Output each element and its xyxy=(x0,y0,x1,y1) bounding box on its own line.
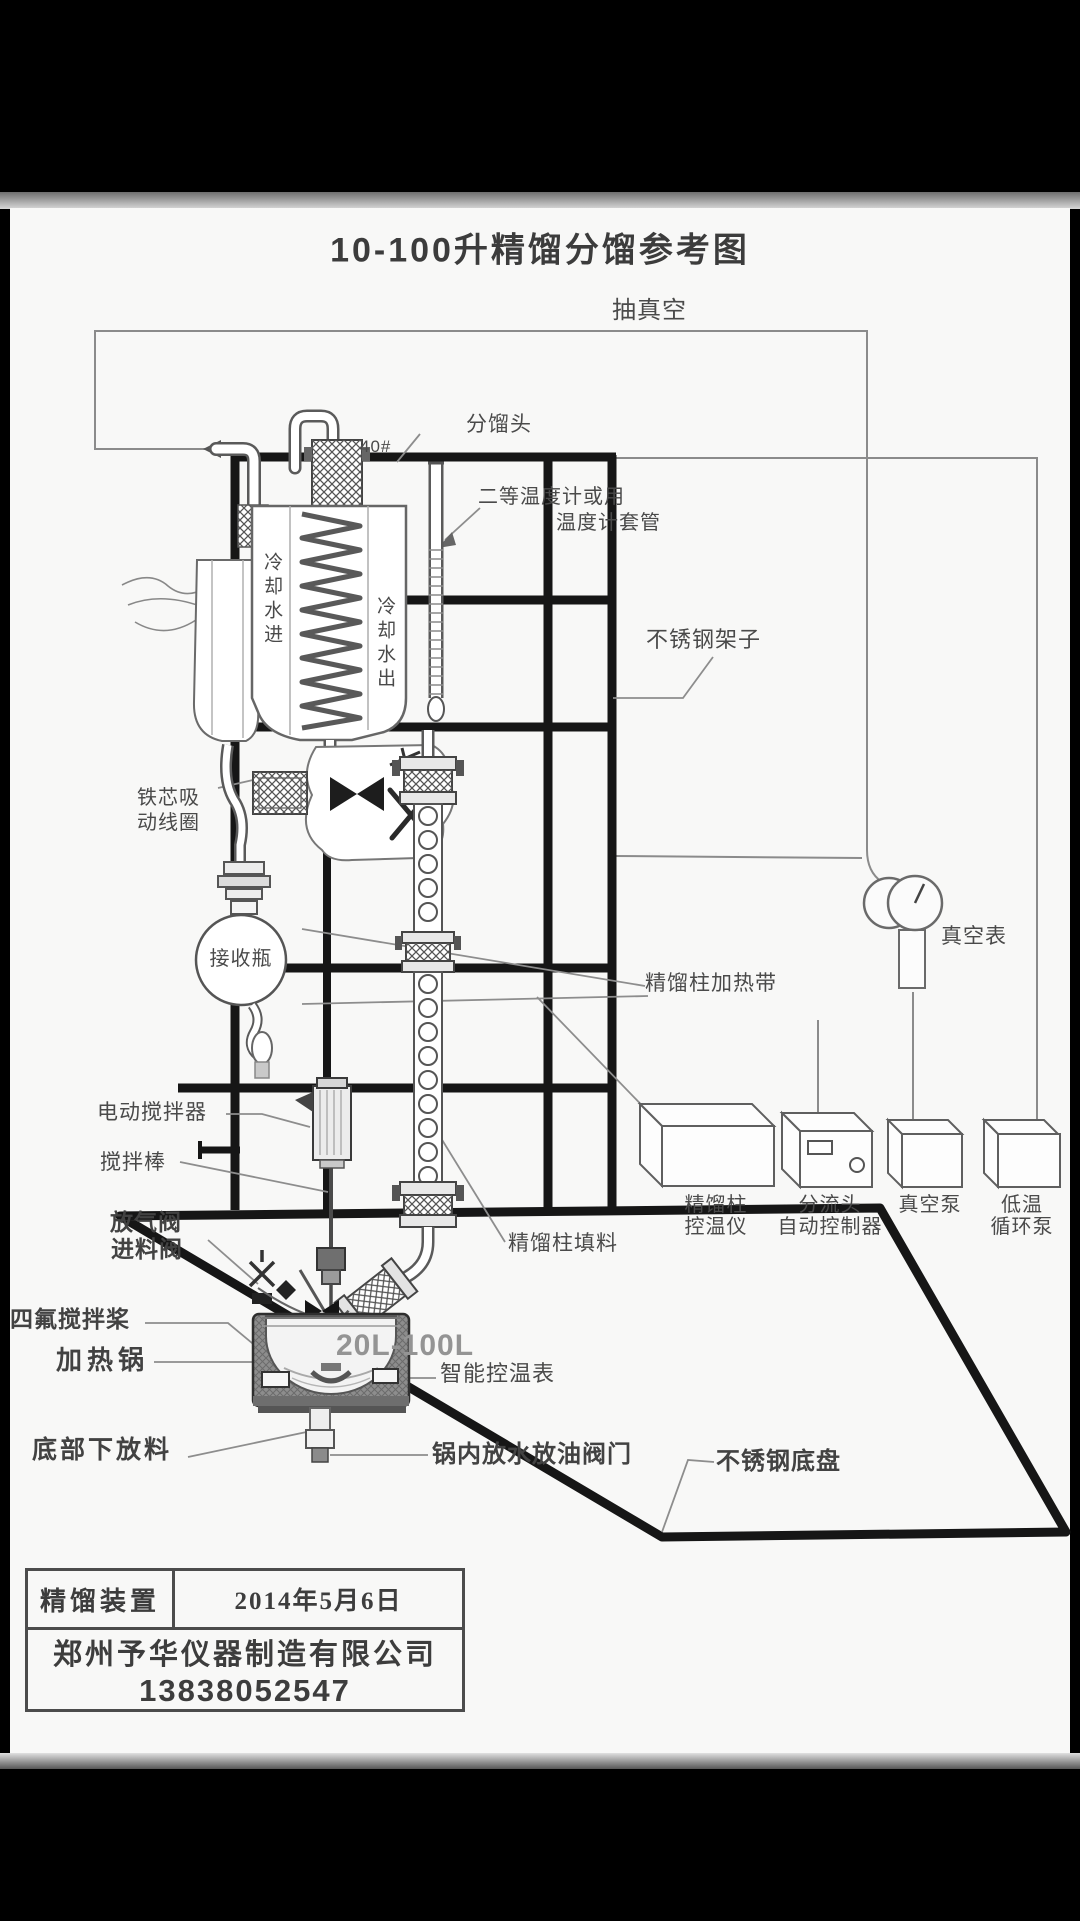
label-iron-core-line1: 铁芯吸 xyxy=(137,786,200,810)
label-steel-frame: 不锈钢架子 xyxy=(646,627,761,654)
label-column-temp-controller: 精馏柱 控温仪 xyxy=(685,1194,748,1238)
label-smart-temp-controller: 智能控温表 xyxy=(440,1361,555,1388)
label-receiver-flask: 接收瓶 xyxy=(210,947,273,971)
label-heating-pot: 加热锅 xyxy=(56,1345,149,1377)
title-block-row2: 郑州予华仪器制造有限公司 13838052547 xyxy=(28,1630,462,1709)
device-name-cell: 精馏装置 xyxy=(28,1571,175,1627)
label-cryo-circulation-pump: 低温 循环泵 xyxy=(991,1194,1054,1238)
label-iron-core-line2: 动线圈 xyxy=(137,811,200,835)
label-kettle-capacity: 20L-100L xyxy=(336,1328,474,1365)
label-line: 控温仪 xyxy=(685,1216,748,1238)
glass-squiggles xyxy=(122,578,206,631)
label-vacuum-gauge: 真空表 xyxy=(941,924,1007,950)
title-block-row1: 精馏装置 2014年5月6日 xyxy=(28,1571,462,1630)
thermometer xyxy=(428,463,444,721)
label-line: 真空泵 xyxy=(899,1194,962,1216)
phone-number: 13838052547 xyxy=(139,1673,351,1709)
label-vacuum-pump: 真空泵 xyxy=(899,1194,962,1216)
label-electric-stirrer: 电动搅拌器 xyxy=(97,1100,207,1126)
date-cell: 2014年5月6日 xyxy=(175,1571,462,1627)
label-column-heating-belt: 精馏柱加热带 xyxy=(645,971,777,997)
label-pot-drain-valve: 锅内放水放油阀门 xyxy=(432,1441,632,1470)
diagram-title: 10-100升精馏分馏参考图 xyxy=(330,223,750,272)
label-thermometer-line1: 二等温度计或用 xyxy=(478,485,625,509)
label-fractionating-head: 分馏头 xyxy=(466,412,532,438)
company-name: 郑州予华仪器制造有限公司 xyxy=(53,1631,437,1673)
label-stirring-rod: 搅拌棒 xyxy=(100,1150,166,1176)
label-thermometer-line2: 温度计套管 xyxy=(556,511,661,535)
label-vacuum-line: 抽真空 xyxy=(612,296,687,325)
title-block: 精馏装置 2014年5月6日 郑州予华仪器制造有限公司 13838052547 xyxy=(25,1568,465,1712)
label-cooling-water-in: 冷却水进 xyxy=(260,552,283,648)
label-line: 循环泵 xyxy=(991,1216,1054,1238)
label-splitter-auto-controller: 分流头 自动控制器 xyxy=(778,1194,883,1238)
scanned-photo-canvas: 10-100升精馏分馏参考图 抽真空 分馏头 40# 二等温度计或用 温度计套管… xyxy=(0,0,1080,1921)
label-feed-valve: 进料阀 xyxy=(111,1236,183,1264)
label-steel-base-plate: 不锈钢底盘 xyxy=(716,1448,841,1477)
label-line: 分流头 xyxy=(778,1194,883,1216)
condenser-glassware xyxy=(194,416,406,762)
label-joint-size: 40# xyxy=(360,437,391,458)
label-line: 低温 xyxy=(991,1194,1054,1216)
label-vent-valve: 放气阀 xyxy=(110,1209,182,1237)
label-bottom-discharge: 底部下放料 xyxy=(32,1436,172,1467)
device-boxes xyxy=(640,1104,1060,1187)
label-line: 精馏柱 xyxy=(685,1194,748,1216)
label-cooling-water-out: 冷却水出 xyxy=(373,596,396,692)
label-column-packing: 精馏柱填料 xyxy=(508,1231,618,1257)
vacuum-gauge xyxy=(864,876,942,988)
label-ptfe-paddle: 四氟搅拌桨 xyxy=(10,1306,130,1334)
label-line: 自动控制器 xyxy=(778,1216,883,1238)
